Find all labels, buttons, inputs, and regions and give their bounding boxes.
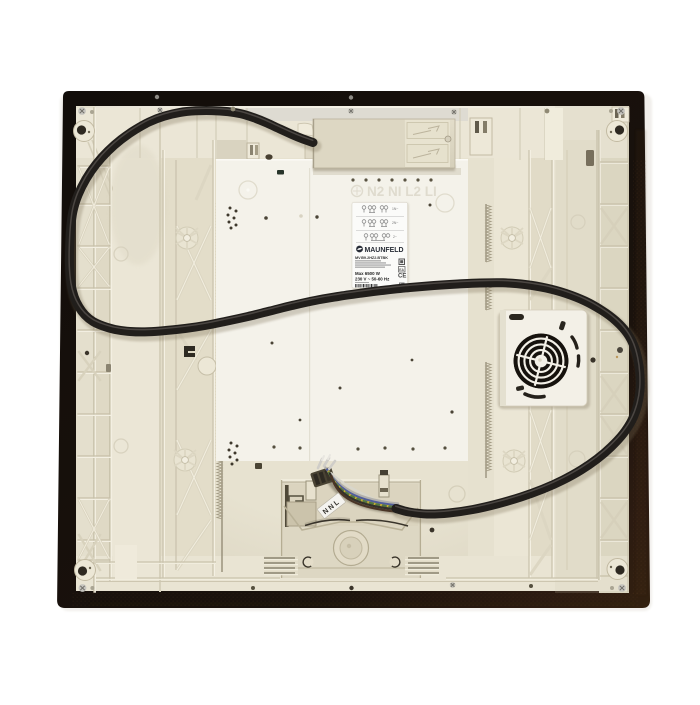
svg-text:CE: CE: [398, 274, 406, 280]
svg-text:MAUNFELD: MAUNFELD: [365, 245, 404, 254]
svg-text:MVI59.2HZ2.BTBK: MVI59.2HZ2.BTBK: [355, 256, 388, 260]
svg-text:2N~: 2N~: [392, 221, 398, 225]
svg-text:2~: 2~: [393, 235, 397, 239]
svg-text:1N~: 1N~: [392, 207, 398, 211]
svg-text:N2 NI L2 LI: N2 NI L2 LI: [367, 184, 437, 199]
svg-text:EA: EA: [399, 268, 404, 272]
svg-text:230 V ~ 50-60 Hz: 230 V ~ 50-60 Hz: [355, 276, 390, 281]
svg-text:Max 6500 W: Max 6500 W: [355, 271, 381, 276]
